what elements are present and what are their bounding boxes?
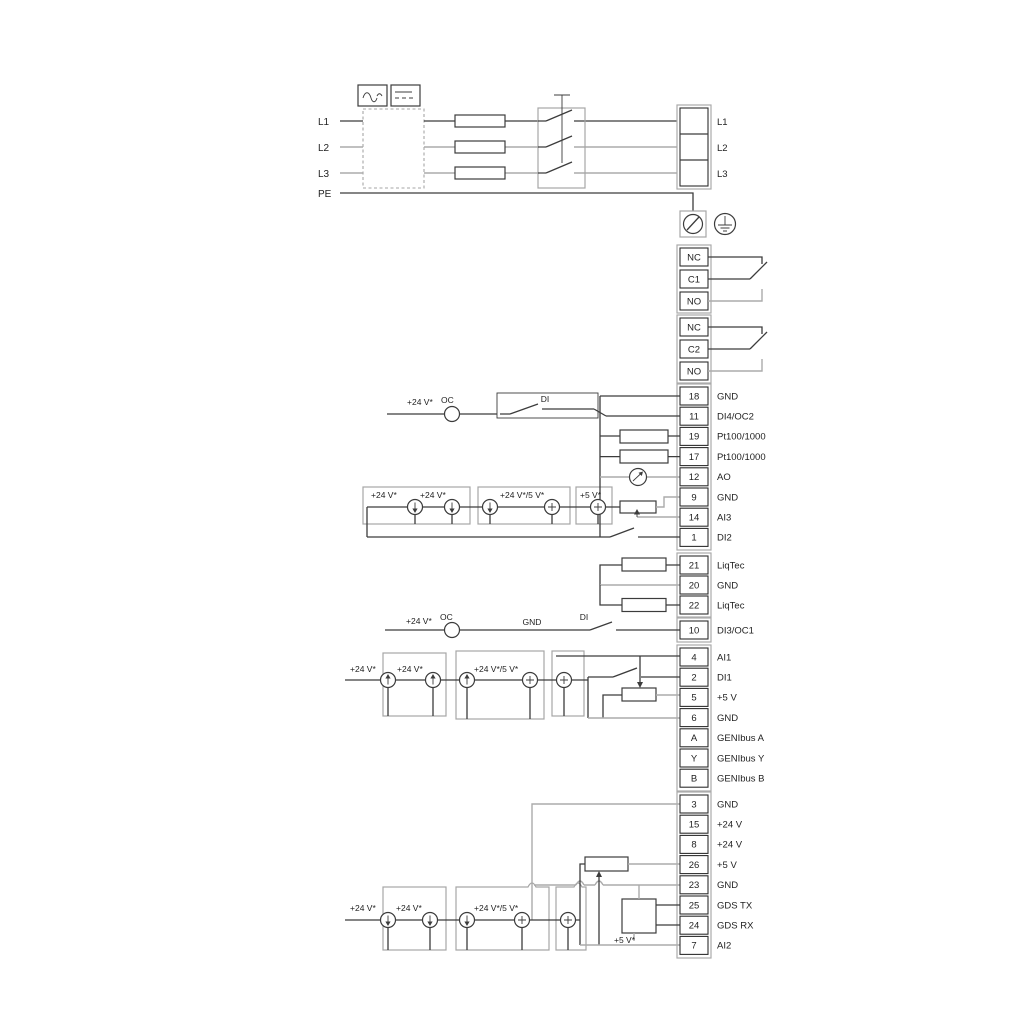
term-8-label: +24 V	[717, 840, 743, 851]
relay1-section: NC C1 NO	[677, 245, 767, 313]
voltage-source-icon	[591, 500, 606, 515]
pe-wire	[340, 193, 693, 211]
liqtec-sensor-1	[600, 558, 681, 585]
term-3-label: GND	[717, 799, 738, 810]
v24-label: +24 V*	[371, 490, 397, 500]
current-source-icon	[460, 673, 475, 688]
pt100-sensor-1	[600, 430, 681, 443]
v24-label: +24 V*	[396, 903, 422, 913]
v5-label: +5 V*	[580, 490, 602, 500]
term-6-label: GND	[717, 713, 738, 724]
term-1-label: DI2	[717, 533, 732, 544]
relay1-nc: NC	[687, 252, 701, 263]
term-14: 14	[689, 513, 700, 524]
v24-label: +24 V*	[397, 664, 423, 674]
current-source-icon	[483, 500, 498, 515]
term-11: 11	[689, 412, 699, 423]
rcd-pulse-icon	[358, 85, 387, 106]
groupC-section: +5 V* +24 V* +24 V* +24 V*/5 V*	[345, 792, 754, 958]
ground-screw-terminal	[680, 211, 706, 237]
term-9: 9	[691, 492, 696, 503]
diagram-svg: L1 L2 L3 PE L1 L	[0, 0, 1024, 1024]
term-A-label: GENIbus A	[717, 733, 765, 744]
term-4: 4	[691, 652, 696, 663]
term-4-label: AI1	[717, 652, 731, 663]
term-21: 21	[689, 560, 700, 571]
v24-label: +24 V*	[420, 490, 446, 500]
main-switch	[538, 95, 585, 188]
term-11-label: DI4/OC2	[717, 412, 754, 423]
label-l3-in: L3	[318, 169, 330, 180]
term-19-label: Pt100/1000	[717, 432, 766, 443]
relay2-section: NC C2 NO	[677, 315, 767, 383]
term-7: 7	[691, 941, 696, 952]
pt100-sensor-2	[600, 450, 681, 463]
term-22-label: LiqTec	[717, 600, 745, 611]
relay1-no: NO	[687, 296, 701, 307]
voltage-source-icon	[545, 500, 560, 515]
v24-5-label: +24 V*/5 V*	[474, 664, 519, 674]
current-source-icon	[381, 913, 396, 928]
term-Y: Y	[691, 753, 698, 764]
term-19: 19	[689, 432, 700, 443]
fuse-l3	[455, 167, 505, 179]
term-25: 25	[689, 900, 700, 911]
term-24: 24	[689, 921, 700, 932]
current-source-icon	[381, 673, 396, 688]
v24-label: +24 V*	[350, 664, 376, 674]
term-22: 22	[689, 600, 700, 611]
term-5-label: +5 V	[717, 693, 737, 704]
term-26: 26	[689, 860, 700, 871]
current-source-icon	[460, 913, 475, 928]
di2-switch	[367, 528, 681, 537]
term-12-label: AO	[717, 472, 731, 483]
term-2-label: DI1	[717, 673, 732, 684]
current-source-icon	[423, 913, 438, 928]
term-10: 10	[689, 625, 700, 636]
wiring-diagram: { "power": { "in": ["L1", "L2", "L3", "P…	[0, 0, 1024, 1024]
relay2-contact	[708, 327, 767, 371]
voltage-source-icon	[557, 673, 572, 688]
term-Y-label: GENIbus Y	[717, 753, 765, 764]
term-1: 1	[691, 533, 696, 544]
term-20-label: GND	[717, 580, 738, 591]
wire-23-gnd	[534, 881, 681, 885]
label-pe: PE	[318, 189, 332, 200]
term-17: 17	[689, 452, 700, 463]
term-15: 15	[689, 820, 700, 831]
rcd-dc-icon	[391, 85, 420, 106]
term-18: 18	[689, 391, 700, 402]
oc-di-circuit-A: +24 V* OC DI	[387, 393, 606, 422]
v24-5-label: +24 V*/5 V*	[500, 490, 545, 500]
di-label: DI	[541, 394, 550, 404]
term-7-label: AI2	[717, 941, 731, 952]
sources-row-C: +24 V* +24 V* +24 V*/5 V*	[345, 903, 580, 950]
oc-contact-symbol	[445, 623, 460, 638]
term-18-label: GND	[717, 391, 738, 402]
ai3-potentiometer	[620, 497, 681, 517]
v24-label: +24 V*	[407, 397, 433, 407]
v5-label: +5 V*	[614, 935, 636, 945]
relay2-c2: C2	[688, 344, 700, 355]
term-A: A	[691, 733, 698, 744]
v24-label: +24 V*	[350, 903, 376, 913]
voltage-source-icon	[561, 913, 576, 928]
v24-5-label: +24 V*/5 V*	[474, 903, 519, 913]
term-10-label: DI3/OC1	[717, 625, 754, 636]
term-12: 12	[689, 472, 700, 483]
liqtec-sensor-2	[600, 585, 681, 612]
term-2: 2	[691, 673, 696, 684]
term-15-label: +24 V	[717, 820, 743, 831]
current-source-icon	[445, 500, 460, 515]
term-B-label: GENIbus B	[717, 774, 765, 785]
sources-row-A: +24 V* +24 V* +24 V*/5 V* +5 V*	[367, 490, 620, 537]
label-l2-out: L2	[717, 143, 728, 154]
fuse-l2	[455, 141, 505, 153]
relay1-c1: C1	[688, 274, 700, 285]
voltage-source-icon	[523, 673, 538, 688]
term-6: 6	[691, 713, 696, 724]
oc-label: OC	[441, 395, 454, 405]
oc-label: OC	[440, 612, 453, 622]
label-l2-in: L2	[318, 143, 330, 154]
oc-contact-symbol	[445, 407, 460, 422]
term-8: 8	[691, 840, 696, 851]
gds-sensor-box: +5 V*	[614, 885, 681, 945]
ai1-potentiometer	[603, 688, 681, 718]
relay1-contact	[708, 257, 767, 301]
earth-symbol-icon	[715, 214, 736, 235]
label-l3-out: L3	[717, 169, 728, 180]
v24-label: +24 V*	[406, 616, 432, 626]
relay2-nc: NC	[687, 322, 701, 333]
label-l1-out: L1	[717, 117, 728, 128]
groupB-section: +24 V* +24 V* +24 V*/5 V*	[345, 645, 765, 791]
term-9-label: GND	[717, 492, 738, 503]
analog-output-meter	[600, 469, 681, 486]
term-21-label: LiqTec	[717, 560, 745, 571]
term-B: B	[691, 774, 697, 785]
term-26-label: +5 V	[717, 860, 737, 871]
term-25-label: GDS TX	[717, 900, 753, 911]
label-l1-in: L1	[318, 117, 330, 128]
relay2-no: NO	[687, 366, 701, 377]
term-5: 5	[691, 693, 696, 704]
fuse-l1	[455, 115, 505, 127]
term-17-label: Pt100/1000	[717, 452, 766, 463]
di-label: DI	[580, 612, 589, 622]
term-23-label: GND	[717, 880, 738, 891]
voltage-source-icon	[515, 913, 530, 928]
current-source-icon	[426, 673, 441, 688]
liqtec-section: 21 20 22 LiqTec GND LiqTec	[600, 553, 745, 617]
gnd-wire-label: GND	[523, 617, 542, 627]
term-3: 3	[691, 799, 696, 810]
term-20: 20	[689, 580, 700, 591]
ai1-wiring	[556, 656, 681, 688]
rcd-dashed-box	[363, 109, 424, 188]
groupA-section: +24 V* OC DI +24 V* +24 V*	[363, 384, 766, 550]
term-14-label: AI3	[717, 513, 731, 524]
term-23: 23	[689, 880, 700, 891]
power-input-section: L1 L2 L3 PE L1 L	[318, 85, 736, 237]
power-out-terminal: L1 L2 L3	[677, 105, 728, 189]
current-source-icon	[408, 500, 423, 515]
term-24-label: GDS RX	[717, 921, 754, 932]
